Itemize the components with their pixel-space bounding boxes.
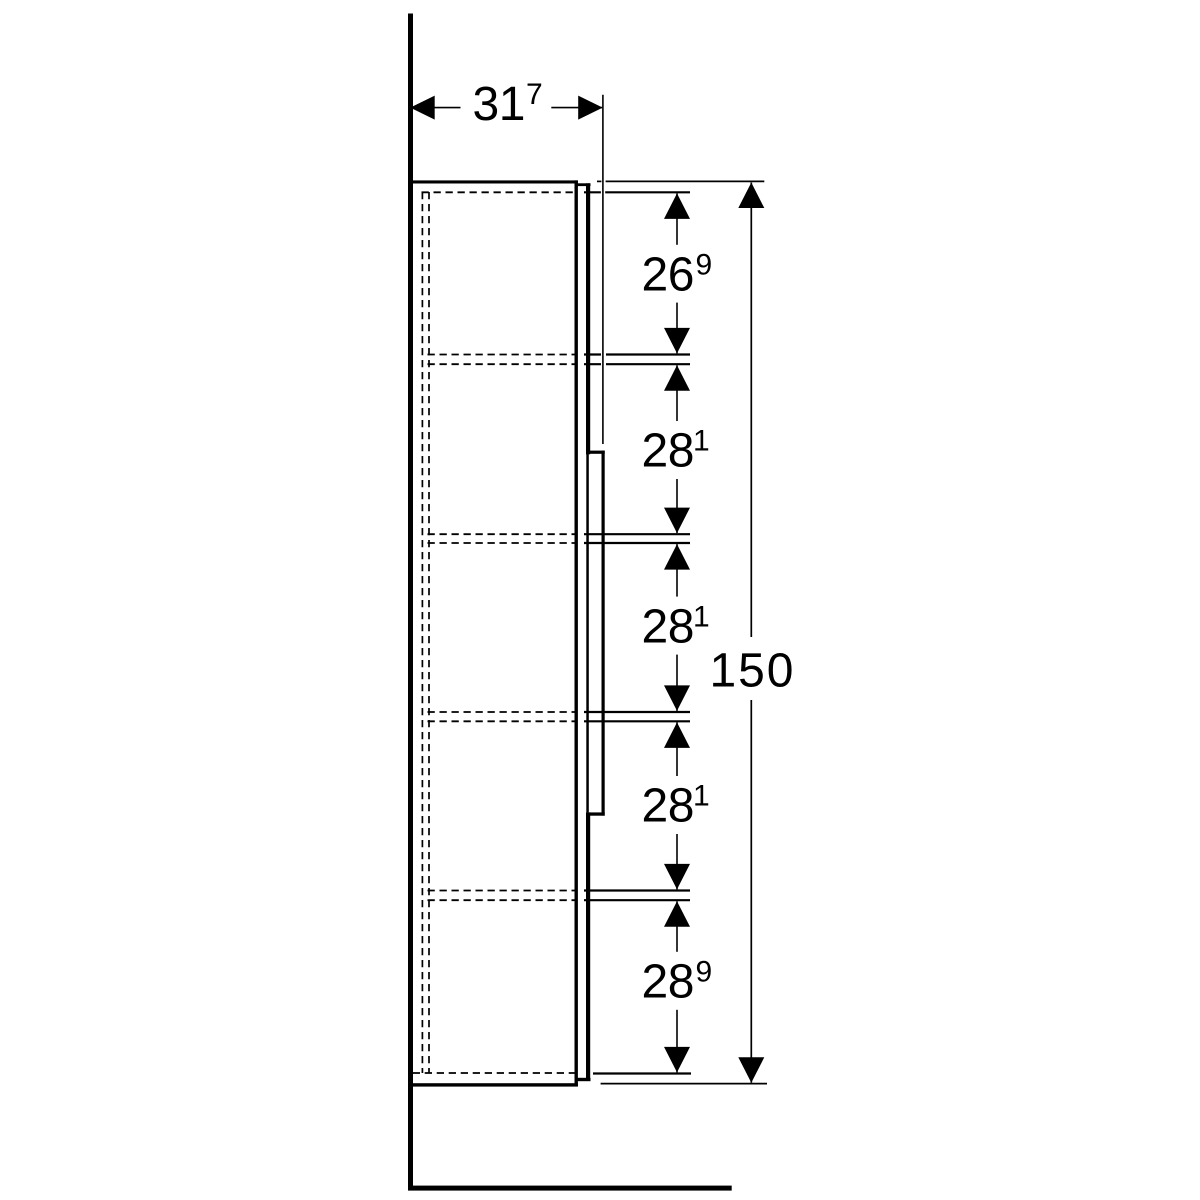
- svg-text:28: 28: [642, 600, 695, 653]
- svg-text:7: 7: [526, 78, 543, 111]
- svg-text:9: 9: [696, 956, 713, 989]
- svg-text:28: 28: [642, 956, 695, 1009]
- svg-text:28: 28: [642, 780, 695, 833]
- svg-text:1: 1: [693, 425, 710, 458]
- svg-text:9: 9: [696, 249, 713, 282]
- svg-text:31: 31: [473, 78, 526, 131]
- svg-text:26: 26: [642, 249, 695, 302]
- svg-text:1: 1: [693, 600, 710, 633]
- svg-text:150: 150: [710, 645, 794, 698]
- svg-text:28: 28: [642, 425, 695, 478]
- svg-text:1: 1: [693, 780, 710, 813]
